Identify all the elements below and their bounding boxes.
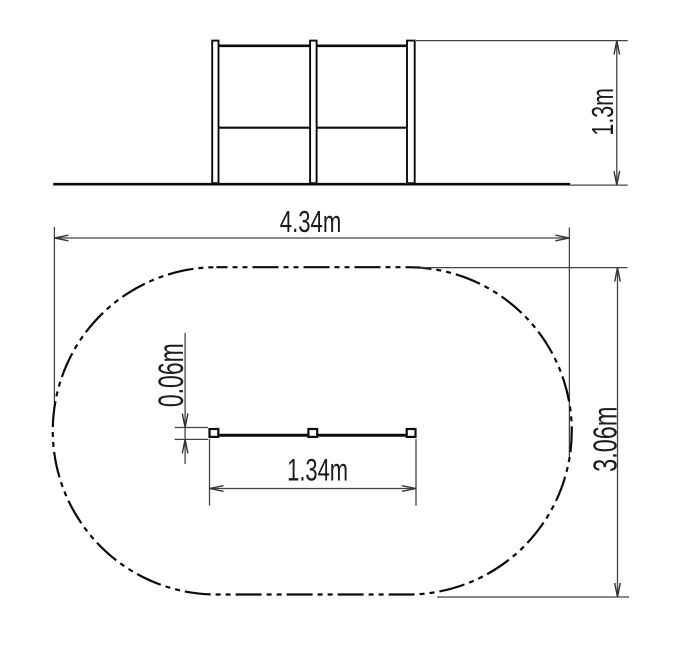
svg-text:3.06m: 3.06m	[588, 407, 625, 472]
svg-text:0.06m: 0.06m	[152, 343, 191, 407]
svg-text:1.34m: 1.34m	[287, 451, 348, 487]
svg-text:1.3m: 1.3m	[585, 88, 620, 136]
svg-text:4.34m: 4.34m	[280, 204, 341, 239]
